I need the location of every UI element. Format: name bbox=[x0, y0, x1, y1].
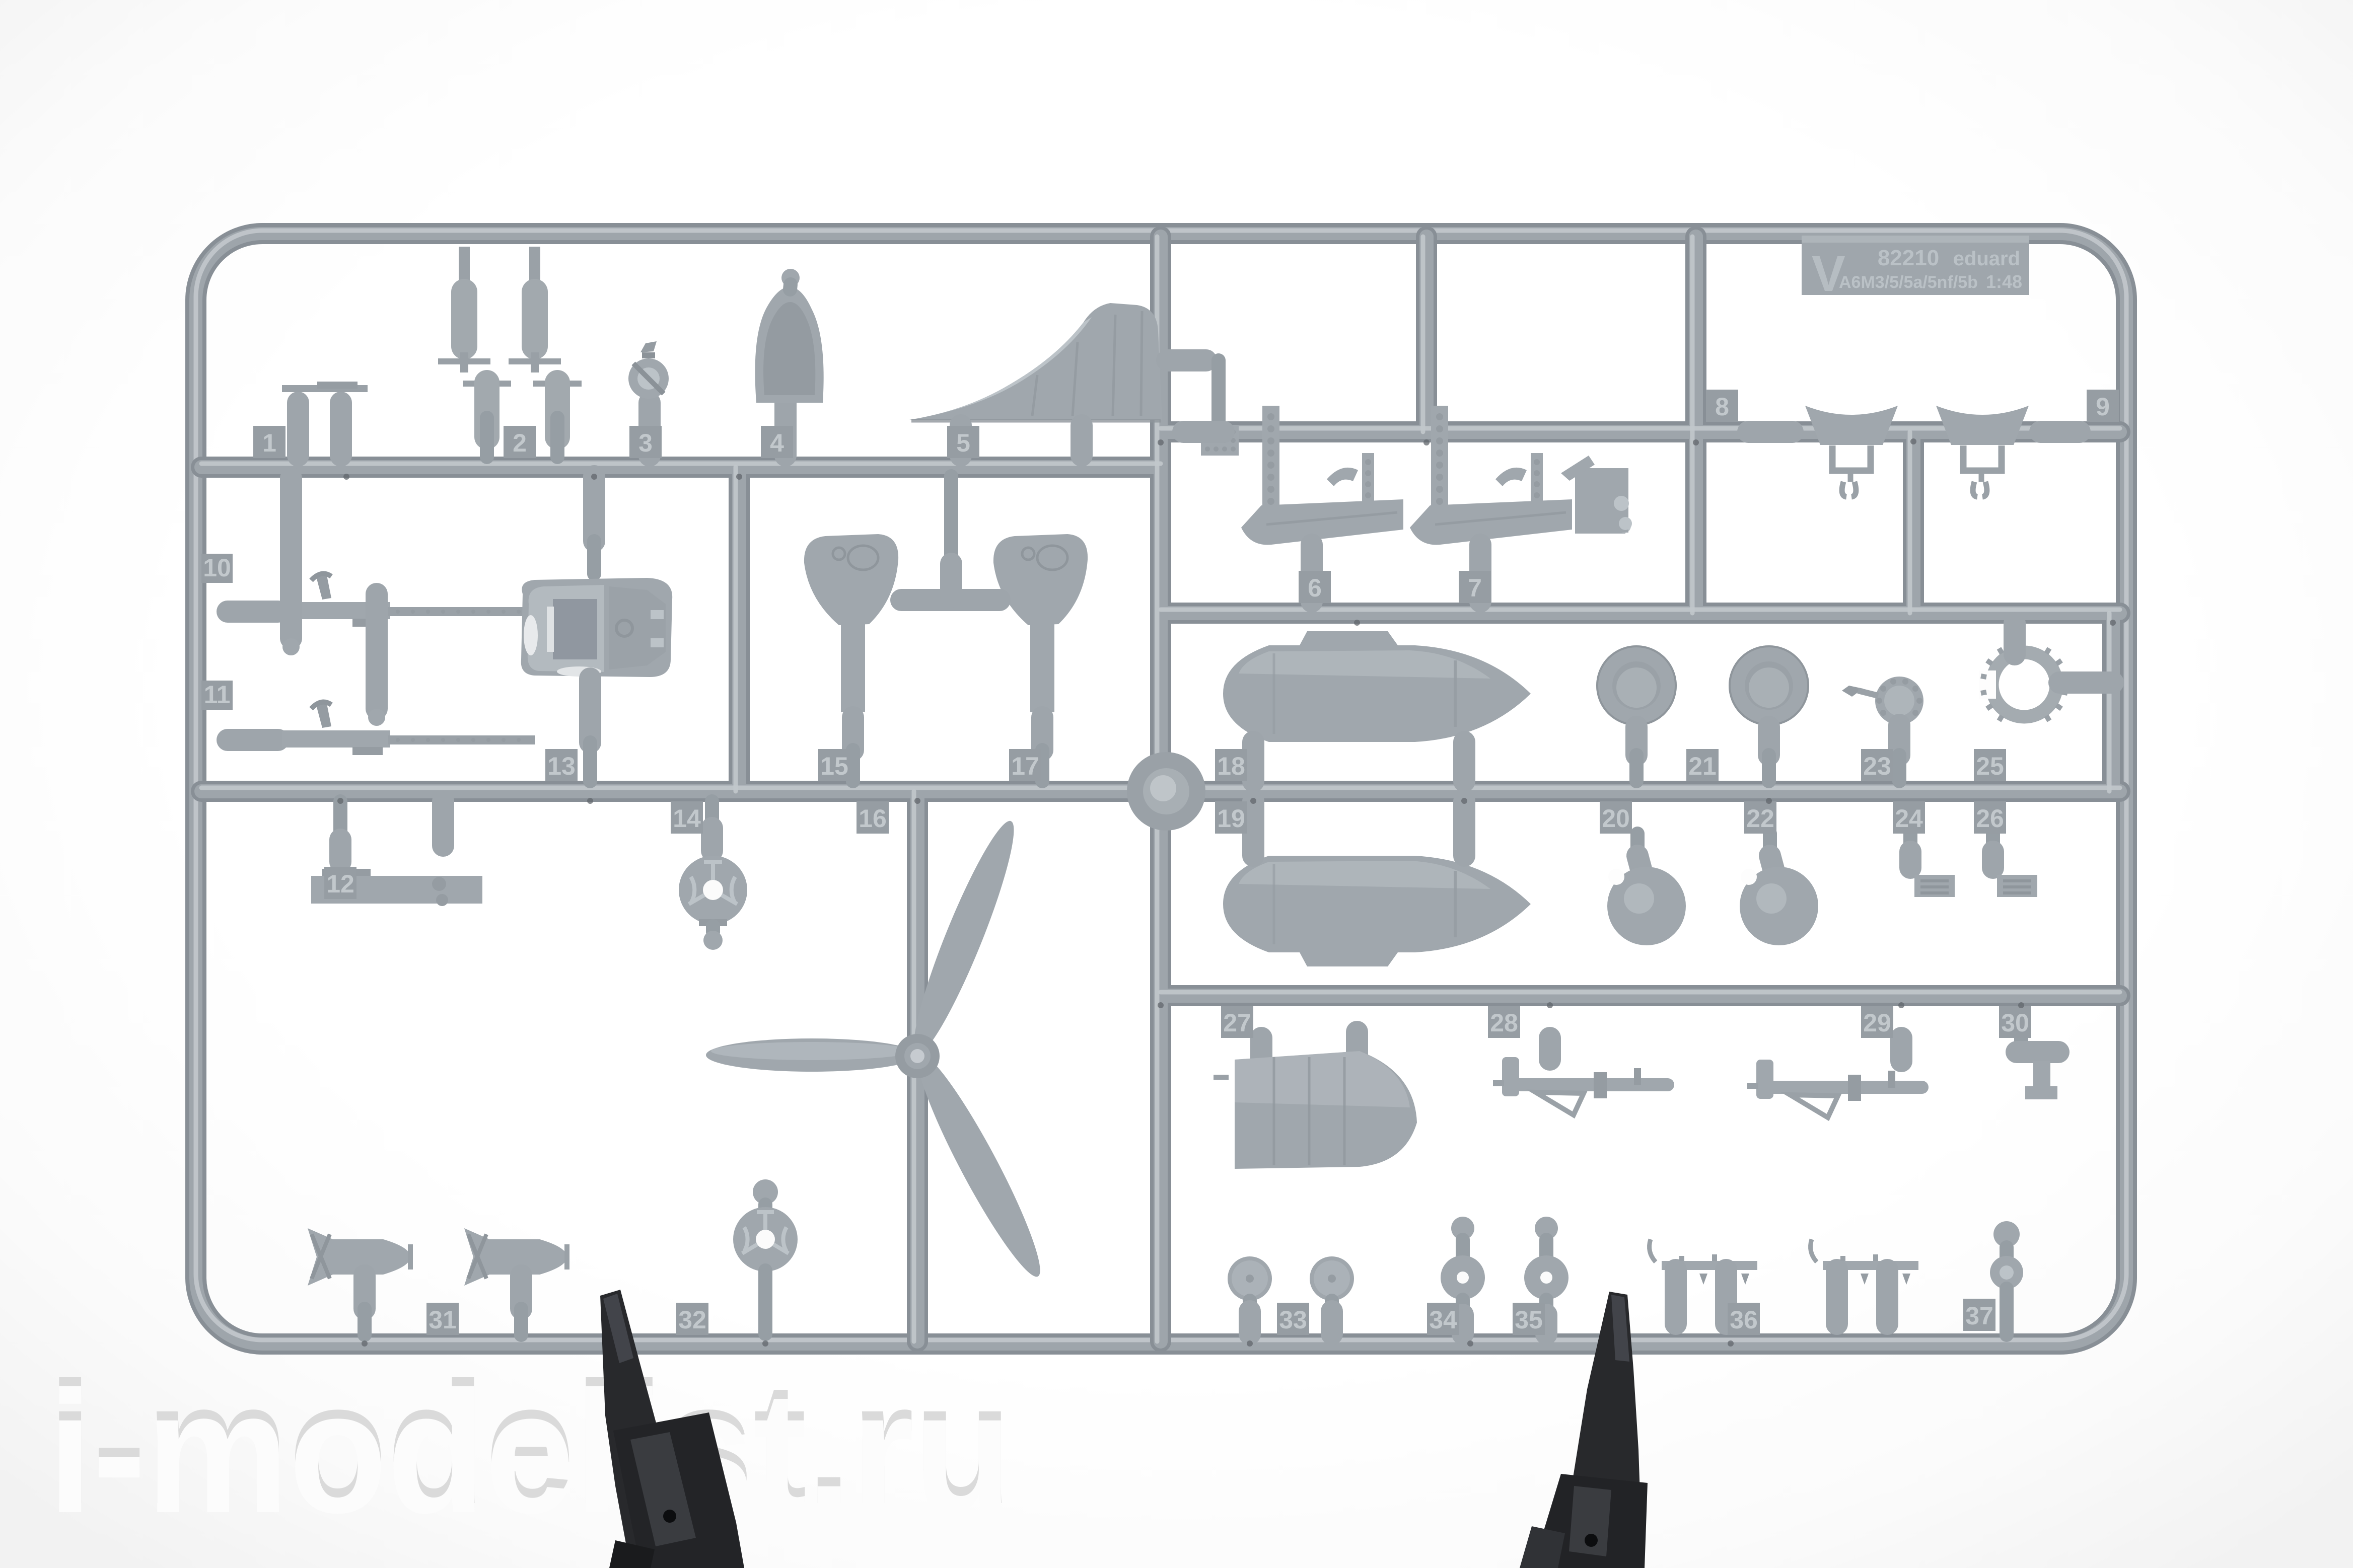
svg-text:31: 31 bbox=[429, 1306, 457, 1334]
svg-text:16: 16 bbox=[859, 804, 887, 833]
svg-text:2: 2 bbox=[513, 429, 527, 457]
svg-text:24: 24 bbox=[1895, 804, 1923, 833]
svg-text:9: 9 bbox=[2096, 393, 2110, 421]
svg-text:26: 26 bbox=[1976, 804, 2004, 833]
svg-text:12: 12 bbox=[326, 870, 354, 898]
svg-text:20: 20 bbox=[1602, 804, 1630, 833]
svg-text:33: 33 bbox=[1279, 1306, 1307, 1334]
svg-text:13: 13 bbox=[547, 752, 576, 780]
svg-text:27: 27 bbox=[1223, 1009, 1251, 1037]
svg-text:32: 32 bbox=[678, 1306, 706, 1334]
svg-text:35: 35 bbox=[1515, 1306, 1543, 1334]
svg-text:i-modelist.ru: i-modelist.ru bbox=[48, 1356, 1012, 1549]
svg-text:23: 23 bbox=[1863, 752, 1891, 780]
svg-text:82210: 82210 bbox=[1878, 246, 1939, 270]
svg-text:34: 34 bbox=[1429, 1306, 1457, 1334]
svg-text:7: 7 bbox=[1468, 574, 1482, 602]
svg-text:8: 8 bbox=[1715, 393, 1729, 421]
svg-text:4: 4 bbox=[770, 429, 784, 457]
svg-text:1: 1 bbox=[262, 429, 276, 457]
svg-text:A6M3/5/5a/5nf/5b: A6M3/5/5a/5nf/5b bbox=[1839, 273, 1978, 292]
svg-text:1:48: 1:48 bbox=[1986, 271, 2022, 292]
svg-text:eduard: eduard bbox=[1953, 248, 2020, 270]
svg-text:6: 6 bbox=[1308, 574, 1322, 602]
svg-text:29: 29 bbox=[1863, 1009, 1891, 1037]
svg-text:22: 22 bbox=[1746, 804, 1774, 833]
svg-text:21: 21 bbox=[1688, 752, 1717, 780]
svg-text:11: 11 bbox=[204, 681, 231, 709]
svg-text:37: 37 bbox=[1965, 1302, 1993, 1330]
svg-text:19: 19 bbox=[1217, 804, 1245, 833]
svg-text:14: 14 bbox=[673, 804, 701, 833]
svg-text:28: 28 bbox=[1490, 1009, 1518, 1037]
svg-text:25: 25 bbox=[1976, 752, 2004, 780]
svg-text:18: 18 bbox=[1217, 752, 1245, 780]
svg-text:15: 15 bbox=[820, 752, 848, 780]
svg-text:36: 36 bbox=[1730, 1306, 1758, 1334]
svg-text:17: 17 bbox=[1011, 752, 1039, 780]
svg-text:10: 10 bbox=[203, 554, 231, 582]
svg-text:5: 5 bbox=[956, 429, 970, 457]
svg-text:3: 3 bbox=[638, 429, 653, 457]
svg-text:30: 30 bbox=[2001, 1009, 2029, 1037]
